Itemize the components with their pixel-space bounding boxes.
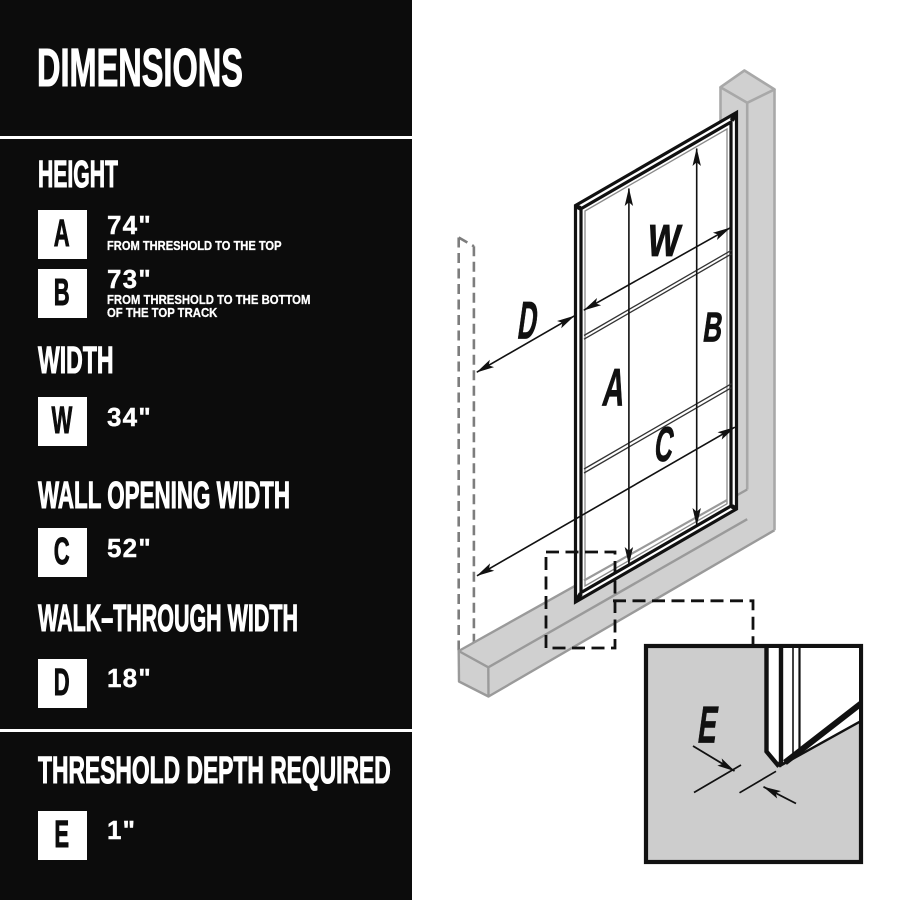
svg-text:D: D <box>515 291 542 350</box>
